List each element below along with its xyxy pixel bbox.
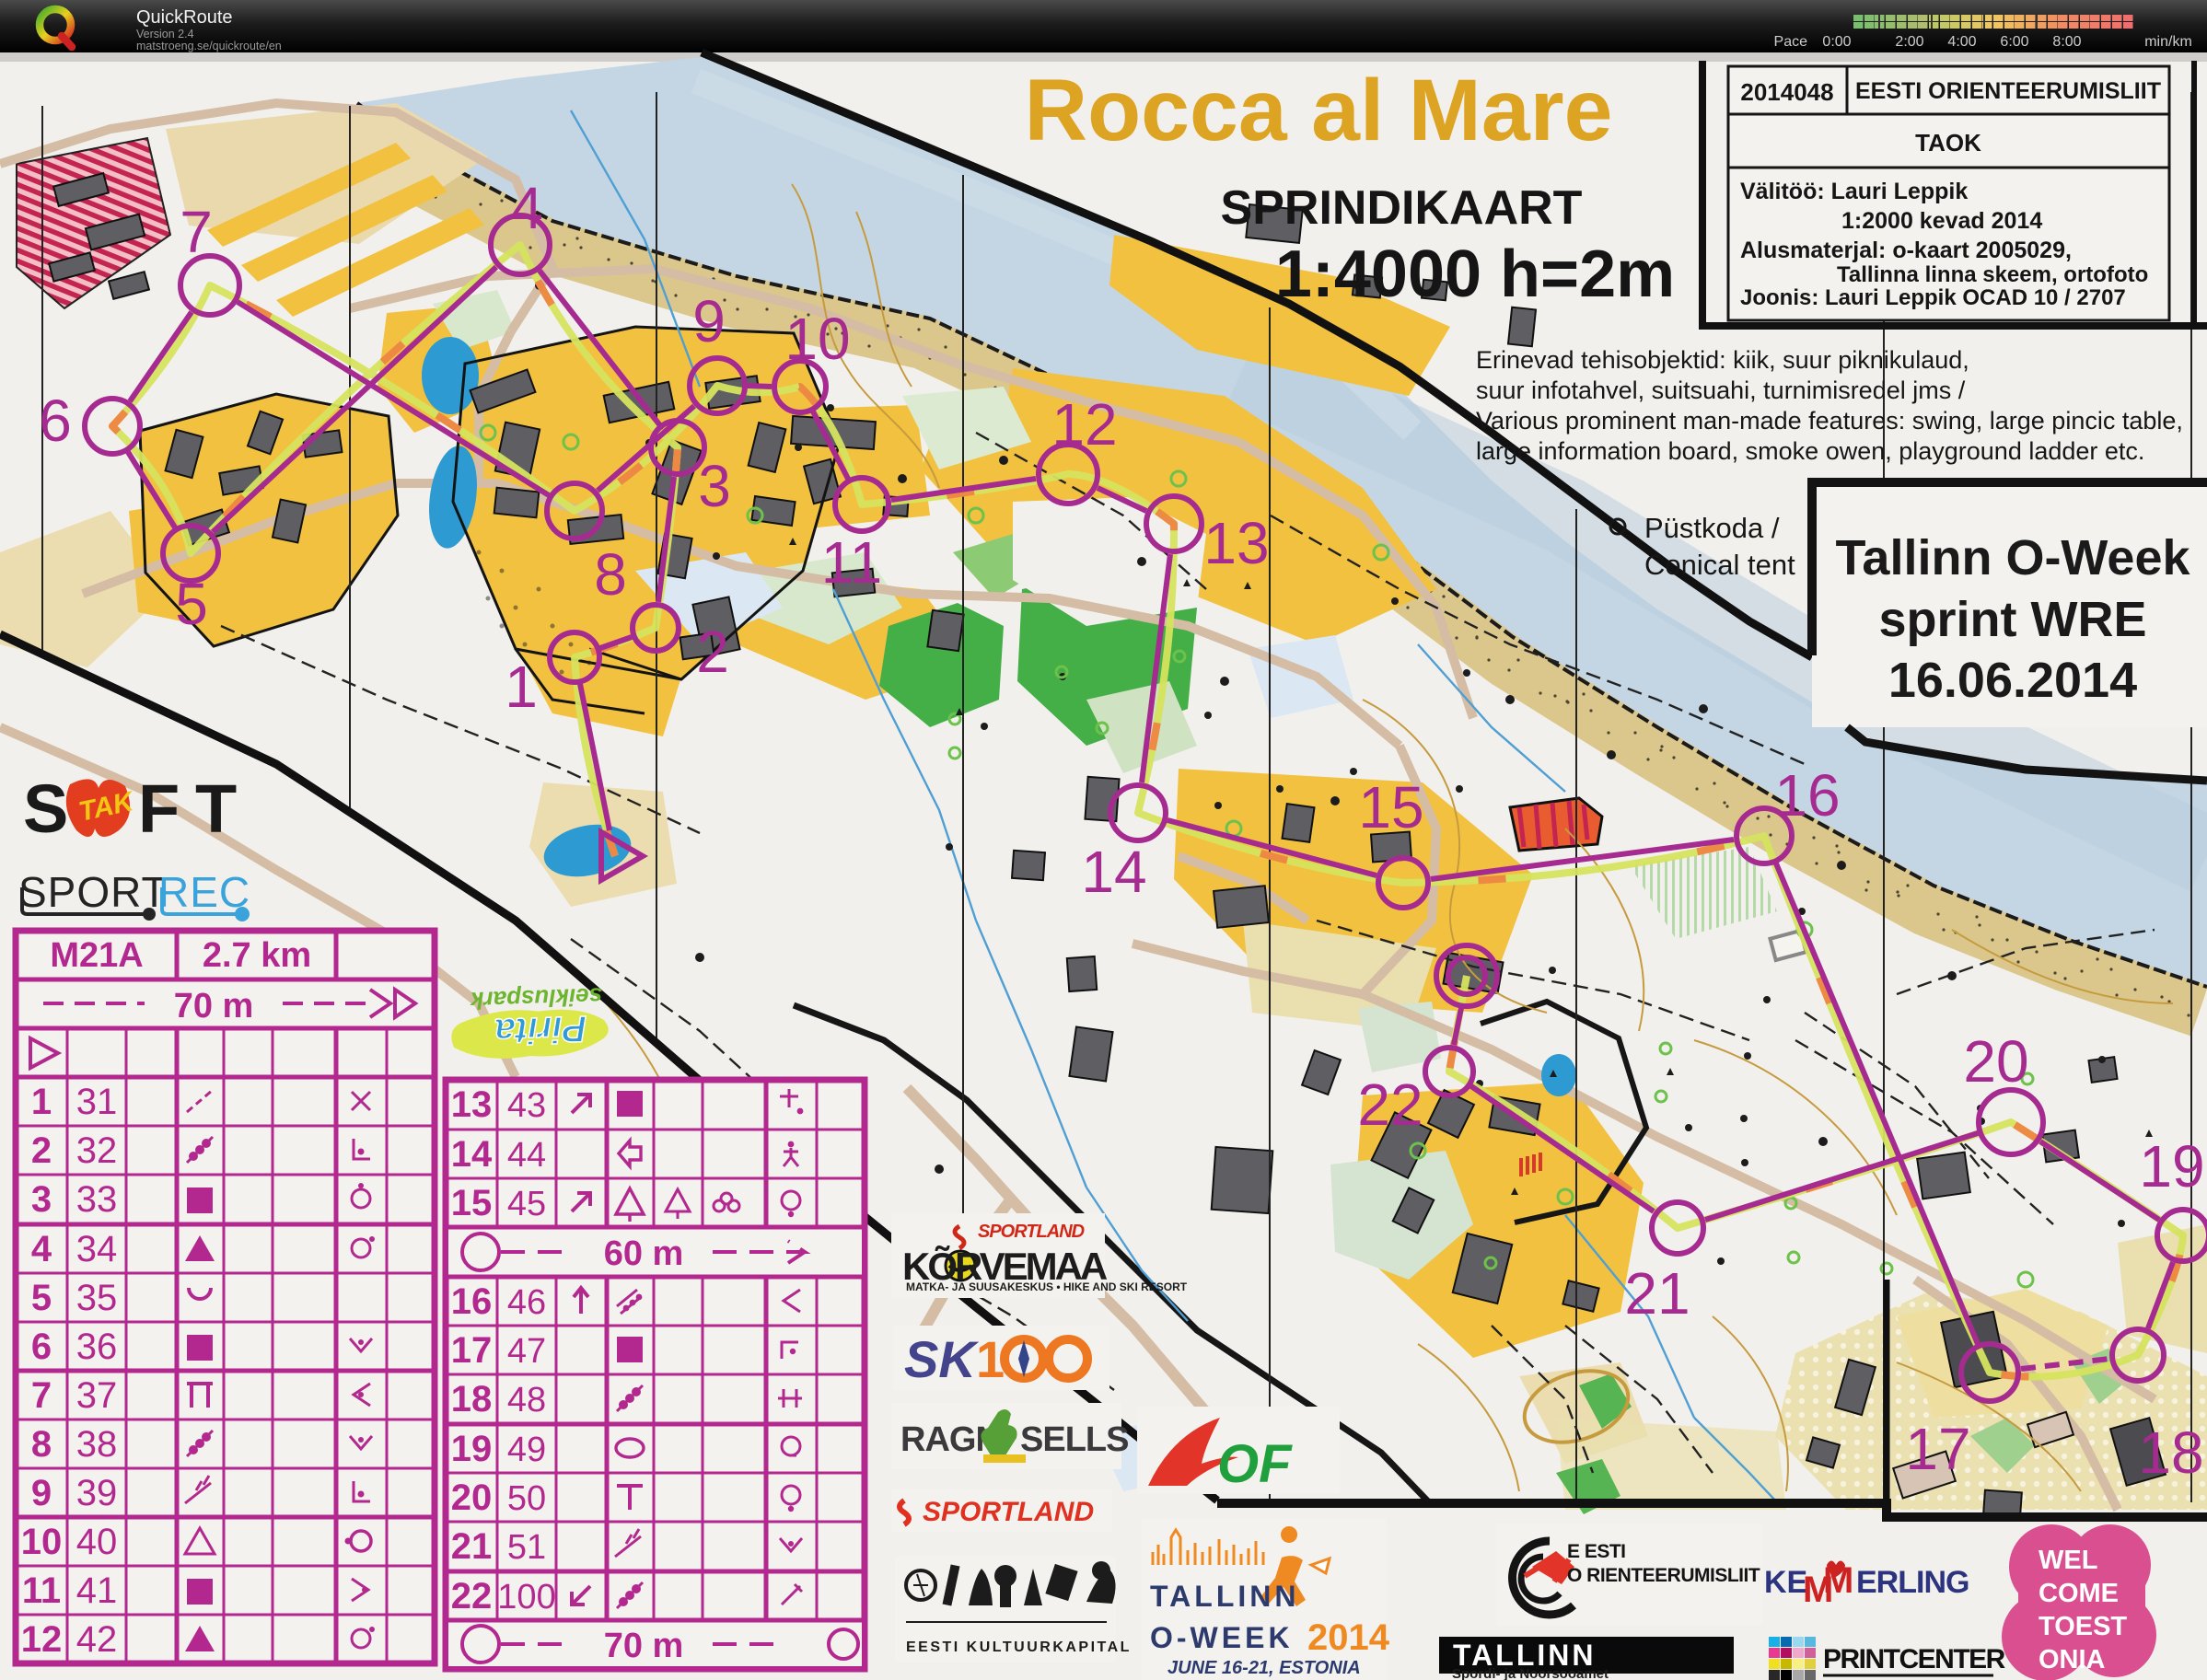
svg-text:70 m: 70 m <box>174 987 254 1025</box>
svg-text:seikluspark: seikluspark <box>469 982 603 1014</box>
svg-text:32: 32 <box>76 1130 118 1171</box>
svg-text:12: 12 <box>21 1619 63 1660</box>
svg-text:TAOK: TAOK <box>1915 129 1981 156</box>
svg-text:22: 22 <box>1357 1072 1423 1138</box>
svg-text:1: 1 <box>31 1082 52 1122</box>
svg-text:16: 16 <box>1774 762 1840 828</box>
svg-text:T: T <box>195 770 237 847</box>
svg-text:large information board, smoke: large information board, smoke owen, pla… <box>1476 437 2144 465</box>
svg-text:Rocca al Mare: Rocca al Mare <box>1025 62 1613 159</box>
svg-text:Various prominent man-made fea: Various prominent man-made features: swi… <box>1476 407 2183 434</box>
svg-text:1:4000 h=2m: 1:4000 h=2m <box>1275 238 1675 311</box>
svg-text:44: 44 <box>507 1136 546 1175</box>
svg-text:SK: SK <box>904 1330 979 1388</box>
svg-text:1: 1 <box>505 654 538 720</box>
svg-text:Pirita: Pirita <box>494 1008 588 1051</box>
svg-text:37: 37 <box>76 1375 118 1416</box>
svg-text:43: 43 <box>507 1086 546 1125</box>
svg-text:REC: REC <box>158 868 250 916</box>
svg-text:17: 17 <box>451 1330 493 1371</box>
svg-text:MATKA- JA SUUSAKESKUS • HIKE A: MATKA- JA SUUSAKESKUS • HIKE AND SKI RES… <box>906 1280 1188 1293</box>
svg-text:40: 40 <box>76 1522 118 1562</box>
svg-text:15: 15 <box>451 1183 493 1223</box>
svg-text:6:00: 6:00 <box>2000 34 2028 50</box>
svg-text:TOEST: TOEST <box>2039 1612 2127 1641</box>
svg-text:2: 2 <box>31 1130 52 1171</box>
svg-text:51: 51 <box>507 1528 546 1567</box>
svg-text:8: 8 <box>31 1424 52 1465</box>
svg-text:21: 21 <box>451 1526 493 1567</box>
svg-text:sprint WRE: sprint WRE <box>1879 592 2147 647</box>
svg-text:1:2000 kevad 2014: 1:2000 kevad 2014 <box>1841 208 2042 234</box>
svg-text:36: 36 <box>76 1327 118 1367</box>
svg-text:5: 5 <box>31 1278 52 1318</box>
svg-text:3: 3 <box>698 453 731 519</box>
svg-text:TALLINN: TALLINN <box>1150 1580 1299 1613</box>
svg-text:6: 6 <box>31 1327 52 1367</box>
svg-text:31: 31 <box>76 1082 118 1122</box>
svg-text:Pace: Pace <box>1774 34 1808 50</box>
svg-text:60 m: 60 m <box>604 1234 684 1273</box>
svg-text:EESTI KULTUURKAPITAL: EESTI KULTUURKAPITAL <box>906 1639 1132 1655</box>
svg-text:42: 42 <box>76 1619 118 1660</box>
svg-text:10: 10 <box>784 306 850 372</box>
svg-text:Tallinn O-Week: Tallinn O-Week <box>1835 530 2190 585</box>
svg-text:KE: KE <box>1764 1565 1807 1600</box>
svg-text:COME: COME <box>2039 1579 2119 1608</box>
svg-text:2014048: 2014048 <box>1740 78 1833 106</box>
svg-text:50: 50 <box>507 1479 546 1518</box>
svg-text:2: 2 <box>696 619 729 685</box>
svg-text:min/km: min/km <box>2144 34 2192 50</box>
svg-text:9: 9 <box>692 288 726 354</box>
svg-text:matstroeng.se/quickroute/en: matstroeng.se/quickroute/en <box>136 40 282 52</box>
svg-text:JUNE 16-21, ESTONIA: JUNE 16-21, ESTONIA <box>1167 1658 1361 1678</box>
svg-text:13: 13 <box>451 1084 493 1125</box>
svg-text:SELLS: SELLS <box>1020 1420 1128 1459</box>
svg-text:13: 13 <box>1203 510 1269 576</box>
svg-text:PRINTCENTER: PRINTCENTER <box>1823 1644 2006 1674</box>
svg-text:70 m: 70 m <box>604 1627 684 1665</box>
svg-text:ONIA: ONIA <box>2039 1645 2106 1674</box>
svg-text:WEL: WEL <box>2039 1546 2097 1575</box>
svg-text:M21A: M21A <box>50 936 143 975</box>
svg-text:2014: 2014 <box>1307 1617 1390 1658</box>
svg-text:47: 47 <box>507 1332 546 1371</box>
svg-text:19: 19 <box>2139 1133 2204 1199</box>
svg-text:17: 17 <box>1905 1416 1970 1482</box>
svg-text:46: 46 <box>507 1283 546 1322</box>
svg-text:20: 20 <box>451 1477 493 1518</box>
svg-text:Tallinna linna skeem, ortofoto: Tallinna linna skeem, ortofoto <box>1837 262 2148 287</box>
svg-text:4: 4 <box>31 1229 52 1269</box>
svg-text:14: 14 <box>1081 839 1146 905</box>
svg-text:45: 45 <box>507 1185 546 1223</box>
svg-text:2:00: 2:00 <box>1895 34 1923 50</box>
svg-text:SPRINDIKAART: SPRINDIKAART <box>1221 181 1583 235</box>
svg-text:Erinevad tehisobjektid: kiik,: Erinevad tehisobjektid: kiik, suur pikni… <box>1476 346 1969 374</box>
svg-text:20: 20 <box>1963 1028 2028 1095</box>
svg-text:7: 7 <box>31 1375 52 1416</box>
svg-text:Püstkoda /: Püstkoda / <box>1644 512 1780 544</box>
svg-text:S: S <box>23 770 68 847</box>
svg-text:100: 100 <box>497 1578 555 1616</box>
svg-text:18: 18 <box>2138 1419 2203 1486</box>
svg-text:2.7 km: 2.7 km <box>203 936 311 975</box>
svg-text:4:00: 4:00 <box>1947 34 1976 50</box>
svg-text:38: 38 <box>76 1424 118 1465</box>
svg-text:F: F <box>138 770 180 847</box>
svg-text:16: 16 <box>451 1281 493 1322</box>
svg-text:7: 7 <box>180 199 213 265</box>
svg-text:14: 14 <box>451 1134 493 1175</box>
svg-text:18: 18 <box>451 1379 493 1419</box>
svg-text:E ESTI: E ESTI <box>1567 1541 1626 1562</box>
svg-text:Conical tent: Conical tent <box>1644 549 1795 581</box>
svg-text:suur infotahvel, suitsuahi, tu: suur infotahvel, suitsuahi, turnimisrede… <box>1476 377 1966 404</box>
svg-text:10: 10 <box>21 1522 63 1562</box>
svg-text:6: 6 <box>39 388 72 454</box>
svg-text:9: 9 <box>31 1473 52 1513</box>
svg-text:34: 34 <box>76 1229 118 1269</box>
svg-text:Version 2.4: Version 2.4 <box>136 28 194 41</box>
svg-text:41: 41 <box>76 1570 118 1611</box>
svg-text:QuickRoute: QuickRoute <box>136 7 233 28</box>
svg-text:8: 8 <box>594 541 627 608</box>
svg-text:OF: OF <box>1217 1434 1293 1494</box>
svg-text:EESTI ORIENTEERUMISLIIT: EESTI ORIENTEERUMISLIIT <box>1855 78 2161 104</box>
svg-text:SPORTLAND: SPORTLAND <box>923 1497 1094 1527</box>
svg-text:21: 21 <box>1624 1260 1690 1327</box>
svg-text:19: 19 <box>451 1429 493 1469</box>
svg-text:Joonis: Lauri Leppik OCAD 10 /: Joonis: Lauri Leppik OCAD 10 / 2707 <box>1740 285 2126 310</box>
svg-text:39: 39 <box>76 1473 118 1513</box>
svg-text:15: 15 <box>1358 774 1423 840</box>
svg-text:4: 4 <box>510 175 543 241</box>
svg-text:0:00: 0:00 <box>1822 34 1851 50</box>
svg-text:5: 5 <box>175 571 208 637</box>
svg-text:22: 22 <box>451 1576 493 1616</box>
svg-text:3: 3 <box>31 1179 52 1220</box>
svg-text:SPORTLAND: SPORTLAND <box>978 1222 1085 1242</box>
svg-text:ERLING: ERLING <box>1856 1565 1969 1600</box>
svg-text:49: 49 <box>507 1431 546 1469</box>
svg-text:O RIENTEERUMISLIIT: O RIENTEERUMISLIIT <box>1567 1565 1760 1586</box>
svg-text:Alusmaterjal: o-kaart 2005029,: Alusmaterjal: o-kaart 2005029, <box>1740 238 2072 263</box>
svg-text:12: 12 <box>1051 391 1117 458</box>
svg-text:Spordi- ja Noorsooamet: Spordi- ja Noorsooamet <box>1452 1666 1609 1680</box>
svg-text:16.06.2014: 16.06.2014 <box>1888 653 2137 708</box>
svg-text:Välitöö: Lauri Leppik: Välitöö: Lauri Leppik <box>1740 179 1968 204</box>
svg-text:35: 35 <box>76 1278 118 1318</box>
svg-text:33: 33 <box>76 1179 118 1220</box>
svg-text:8:00: 8:00 <box>2052 34 2081 50</box>
svg-text:11: 11 <box>821 529 882 596</box>
svg-text:11: 11 <box>22 1570 61 1611</box>
svg-text:48: 48 <box>507 1381 546 1419</box>
svg-text:O-WEEK: O-WEEK <box>1150 1621 1294 1654</box>
